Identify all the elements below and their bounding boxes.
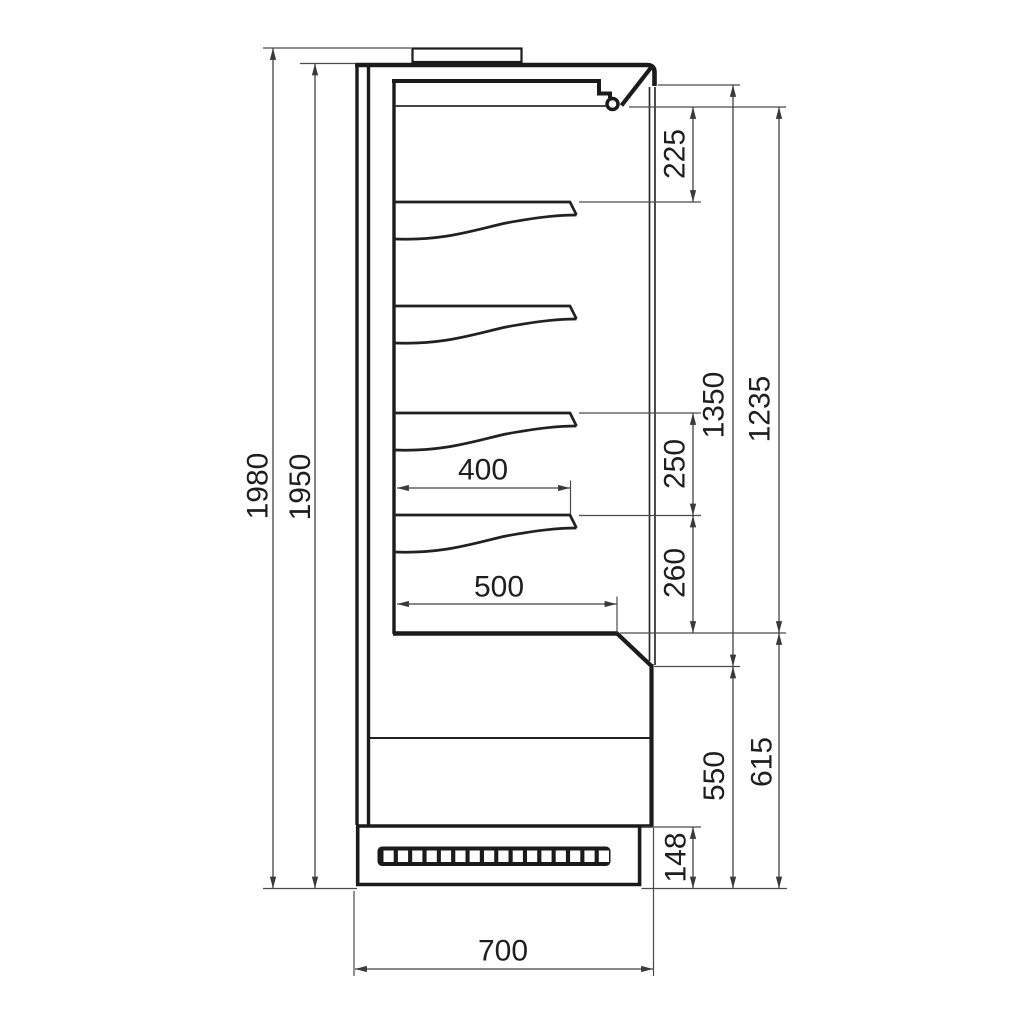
grille-slot bbox=[427, 851, 437, 863]
dim-label-opening-height-inner: 1235 bbox=[744, 376, 777, 443]
grille-slot bbox=[441, 851, 451, 863]
dim-plinth-height: 148 bbox=[660, 827, 694, 889]
dim-label-shelf-spacing: 250 bbox=[659, 439, 692, 489]
grille-slot bbox=[570, 851, 580, 863]
grille-slot bbox=[384, 851, 394, 863]
grille-slot bbox=[455, 851, 465, 863]
dim-label-shelf-depth: 400 bbox=[458, 454, 508, 487]
canvas-background bbox=[0, 0, 1024, 1024]
grille-slot bbox=[556, 851, 566, 863]
dim-label-base-section-height: 615 bbox=[746, 737, 779, 787]
grille-slot bbox=[470, 851, 480, 863]
canopy-hook-curl bbox=[607, 99, 618, 110]
technical-drawing-page: 1980 1950 225 250 260 148 1350 bbox=[0, 0, 1024, 1024]
grille-slot bbox=[498, 851, 508, 863]
dim-label-canopy-to-top-shelf: 225 bbox=[659, 129, 692, 179]
dim-label-overall-depth: 700 bbox=[478, 935, 528, 968]
grille-slot bbox=[527, 851, 537, 863]
grille-slot bbox=[398, 851, 408, 863]
grille-slot bbox=[541, 851, 551, 863]
ventilation-grille bbox=[378, 847, 611, 867]
grille-slot bbox=[513, 851, 523, 863]
top-spacer-block bbox=[413, 49, 522, 63]
grille-slot bbox=[599, 851, 609, 863]
grille-slot bbox=[584, 851, 594, 863]
dim-label-bottom-shelf-to-deck: 260 bbox=[659, 548, 692, 598]
dim-label-body-height: 1950 bbox=[284, 454, 317, 521]
dim-label-opening-height-outer: 1350 bbox=[698, 372, 731, 439]
grille-slot bbox=[412, 851, 422, 863]
dim-label-plinth-height: 148 bbox=[660, 832, 693, 882]
dim-label-deck-depth: 500 bbox=[474, 571, 524, 604]
cabinet-section-drawing: 1980 1950 225 250 260 148 1350 bbox=[0, 0, 1024, 1024]
dim-label-lower-front-height: 550 bbox=[698, 751, 731, 801]
grille-slot bbox=[484, 851, 494, 863]
dim-label-overall-height: 1980 bbox=[242, 453, 275, 520]
